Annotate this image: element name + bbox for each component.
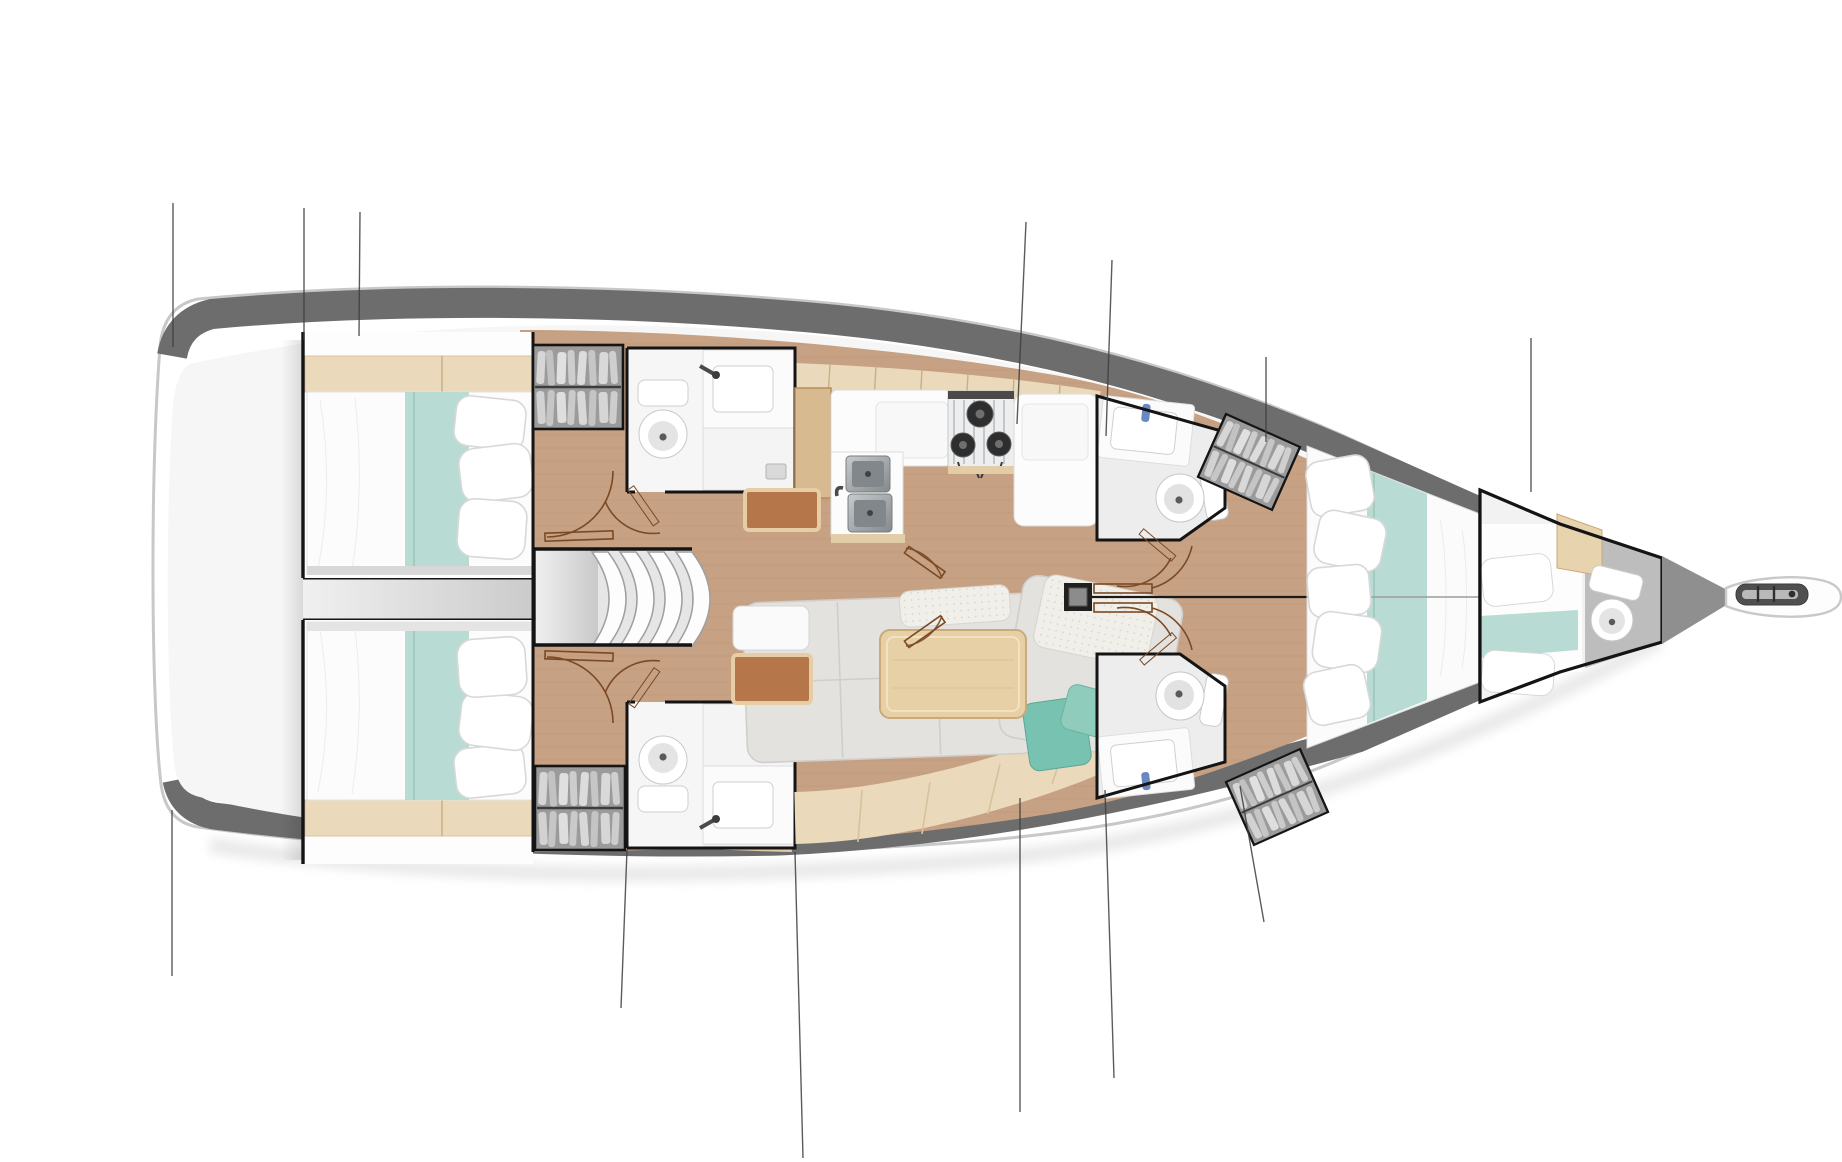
counter-lid [876,402,948,458]
shower-pan [703,428,795,490]
companionway-stairs [534,549,710,646]
berth-pillow [1480,552,1555,607]
headboard-cabinet [305,800,533,836]
washbasin [713,782,773,828]
table [880,630,1026,718]
bow-deck-wedge [1662,556,1733,644]
platform-edge-shadow [281,340,303,860]
bed-pillows [453,394,535,560]
bench [733,606,809,650]
bed-pillows [453,636,535,800]
aft-cabin-starboard [303,620,535,864]
deck-plan-canvas [0,0,1842,1162]
bow-cabin [1480,490,1662,702]
hanging-locker-aft-port [533,345,623,429]
toilet-tank [638,786,688,812]
cushion [899,584,1011,628]
tall-cabinet [795,388,831,498]
washbasin [713,366,773,412]
floor-mat [745,490,819,530]
headboard-cabinet [305,356,533,392]
shower-drain [766,464,786,479]
bowsprit [1726,577,1841,616]
stairs-landing [534,549,598,645]
aft-corridor [303,578,545,620]
aft-cabin-port [303,332,535,578]
hanging-locker-aft-starboard [535,766,625,850]
deck-plan-svg [0,0,1842,1162]
toilet-tank [638,380,688,406]
floor-mat [733,655,811,703]
